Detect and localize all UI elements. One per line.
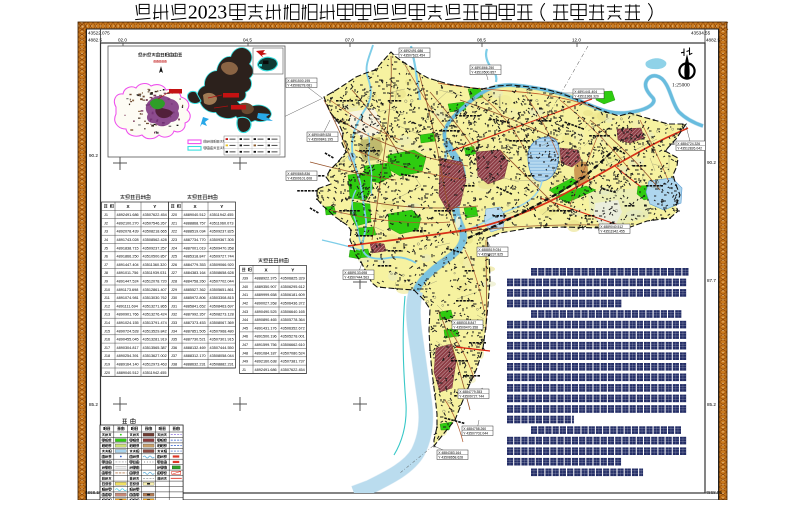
svg-text:Y: Y [291, 268, 294, 273]
svg-text:J38: J38 [171, 363, 177, 367]
svg-text:43507968.480: 43507968.480 [210, 329, 234, 333]
svg-text:J19: J19 [104, 363, 110, 367]
svg-text:43507080.524: 43507080.524 [281, 351, 305, 355]
svg-text:4885527.362: 4885527.362 [184, 288, 206, 292]
svg-text:07.0: 07.0 [345, 38, 354, 43]
svg-text:4890901.766: 4890901.766 [117, 313, 139, 317]
svg-text:X 4889040.512: X 4889040.512 [600, 225, 623, 229]
svg-text:43511360.320: 43511360.320 [143, 263, 167, 267]
svg-text:4891011.756: 4891011.756 [117, 271, 139, 275]
svg-text:43508218.665: 43508218.665 [143, 230, 167, 234]
svg-text:4891447.404: 4891447.404 [117, 263, 139, 267]
svg-text:Y 43509470.358: Y 43509470.358 [453, 326, 478, 330]
svg-text:X 4891500.195: X 4891500.195 [287, 79, 310, 83]
svg-text:4892100.270: 4892100.270 [117, 221, 139, 225]
svg-text:J1: J1 [242, 368, 246, 372]
svg-text:X 4891441.404: X 4891441.404 [574, 90, 597, 94]
svg-text:J8: J8 [104, 271, 108, 275]
svg-text:43509727.744: 43509727.744 [210, 255, 234, 259]
svg-text:43509470.358: 43509470.358 [210, 246, 234, 250]
svg-text:4892491.686: 4892491.686 [255, 368, 277, 372]
svg-text:J34: J34 [171, 329, 177, 333]
svg-text:4889999.658: 4889999.658 [255, 293, 277, 297]
svg-text:J42: J42 [242, 302, 248, 306]
svg-text:J20: J20 [171, 213, 177, 217]
svg-text:4891084.187: 4891084.187 [255, 351, 277, 355]
svg-text:J11: J11 [104, 296, 110, 300]
svg-text:J32: J32 [171, 313, 177, 317]
svg-text:4887730.521: 4887730.521 [184, 338, 206, 342]
svg-text:X 4890865.836: X 4890865.836 [287, 172, 310, 176]
svg-text:43509237.257: 43509237.257 [143, 246, 167, 250]
svg-text:X 4884383.164: X 4884383.164 [438, 451, 461, 455]
svg-text:Y 43509101.608: Y 43509101.608 [287, 177, 312, 181]
svg-text:4868.55: 4868.55 [85, 490, 102, 495]
svg-text:Y: Y [153, 204, 156, 209]
svg-text:J35: J35 [171, 338, 177, 342]
svg-text:J21: J21 [171, 221, 177, 225]
svg-text:X 4884758.260: X 4884758.260 [463, 427, 486, 431]
svg-text:J30: J30 [171, 296, 177, 300]
svg-text:1:25000: 1:25000 [672, 83, 690, 89]
svg-text:43506181.609: 43506181.609 [281, 293, 305, 297]
svg-text:43506662.610: 43506662.610 [281, 343, 305, 347]
svg-text:43507622.454: 43507622.454 [143, 213, 167, 217]
svg-text:43506436.372: 43506436.372 [281, 302, 305, 306]
svg-text:4890724.528: 4890724.528 [117, 329, 139, 333]
svg-text:Y 43509727.744: Y 43509727.744 [459, 395, 484, 399]
svg-text:43507546.267: 43507546.267 [143, 221, 167, 225]
svg-text:43508273.128: 43508273.128 [210, 313, 234, 317]
svg-text:43534.55: 43534.55 [691, 31, 711, 36]
svg-text:4891743.028: 4891743.028 [117, 238, 139, 242]
svg-text:43512861.407: 43512861.407 [143, 288, 167, 292]
svg-text:X 4885318.847: X 4885318.847 [453, 321, 476, 325]
svg-text:J23: J23 [171, 238, 177, 242]
svg-text:4889350.907: 4889350.907 [255, 285, 277, 289]
svg-text:4885841.652: 4885841.652 [184, 304, 206, 308]
svg-text:J46: J46 [242, 335, 248, 339]
svg-text:Y 43511368.320: Y 43511368.320 [574, 95, 599, 99]
svg-text:43507381.737: 43507381.737 [281, 360, 305, 364]
svg-text:90.2: 90.2 [89, 153, 98, 158]
svg-text:4887001.019: 4887001.019 [184, 246, 206, 250]
svg-text:4890490.525: 4890490.525 [255, 310, 277, 314]
svg-text:4888868.757: 4888868.757 [184, 221, 206, 225]
svg-text:4891074.981: 4891074.981 [117, 296, 139, 300]
svg-text:J9: J9 [104, 280, 108, 284]
svg-text:85.2: 85.2 [89, 402, 98, 407]
svg-text:J49: J49 [242, 360, 248, 364]
svg-text:X 4892491.686: X 4892491.686 [400, 49, 423, 53]
svg-text:43513281.919: 43513281.919 [143, 338, 167, 342]
svg-text:J39: J39 [242, 277, 248, 281]
svg-text:4890027.268: 4890027.268 [255, 302, 277, 306]
svg-text:Y 43508658.628: Y 43508658.628 [438, 456, 463, 460]
svg-text:43503308.815: 43503308.815 [210, 296, 234, 300]
svg-text:Y 43509843.195: Y 43509843.195 [308, 138, 333, 142]
svg-text:4890304.817: 4890304.817 [117, 346, 139, 350]
svg-text:4885972.806: 4885972.806 [184, 296, 206, 300]
svg-text:4891111.694: 4891111.694 [117, 304, 138, 308]
svg-text:43513529.842: 43513529.842 [143, 329, 167, 333]
svg-text:X 4884724.326: X 4884724.326 [677, 142, 700, 146]
svg-text:43513030.762: 43513030.762 [143, 296, 167, 300]
svg-text:43506825.329: 43506825.329 [281, 277, 305, 281]
svg-text:85.2: 85.2 [707, 402, 716, 407]
svg-text:4868.55: 4868.55 [706, 490, 723, 495]
svg-text:J31: J31 [171, 304, 177, 308]
svg-text:4888132.469: 4888132.469 [184, 346, 206, 350]
svg-text:43508882.231: 43508882.231 [210, 363, 234, 367]
svg-text:4891500.196: 4891500.196 [255, 335, 277, 339]
svg-text:4888312.170: 4888312.170 [184, 354, 206, 358]
svg-text:4884758.260: 4884758.260 [184, 280, 206, 284]
svg-text:4891173.698: 4891173.698 [117, 288, 139, 292]
svg-text:43505778.364: 43505778.364 [281, 318, 305, 322]
svg-text:90.2: 90.2 [707, 160, 716, 165]
svg-text:4884383.164: 4884383.164 [184, 271, 206, 275]
svg-text:J4: J4 [104, 238, 108, 242]
svg-text:J16: J16 [104, 338, 110, 342]
svg-text:J5: J5 [104, 246, 108, 250]
svg-text:J45: J45 [242, 326, 248, 330]
svg-text:J7: J7 [104, 263, 108, 267]
svg-text:4891866.250: 4891866.250 [117, 255, 139, 259]
svg-text:Y 43512826.042: Y 43512826.042 [677, 147, 702, 151]
svg-text:43508562.428: 43508562.428 [143, 238, 167, 242]
svg-text:J44: J44 [242, 318, 248, 322]
svg-text:43509237.825: 43509237.825 [210, 230, 234, 234]
svg-text:43508058.044: 43508058.044 [210, 354, 234, 358]
svg-text:4888519.034: 4888519.034 [184, 230, 206, 234]
svg-text:J22: J22 [171, 230, 177, 234]
svg-text:08.5: 08.5 [477, 38, 486, 43]
svg-text:X 4890489.528: X 4890489.528 [308, 133, 331, 137]
svg-text:43513271.865: 43513271.865 [143, 304, 167, 308]
svg-text:Y: Y [220, 204, 223, 209]
svg-text:43513276.424: 43513276.424 [143, 313, 167, 317]
svg-text:4889164.140: 4889164.140 [117, 363, 139, 367]
svg-text:J48: J48 [242, 351, 248, 355]
svg-text:J47: J47 [242, 343, 248, 347]
svg-text:4882.5: 4882.5 [706, 38, 720, 43]
svg-text:Y 43509237.825: Y 43509237.825 [478, 253, 503, 257]
svg-text:4887734.770: 4887734.770 [184, 238, 206, 242]
svg-text:4885318.847: 4885318.847 [184, 255, 206, 259]
svg-text:12.0: 12.0 [572, 38, 581, 43]
svg-text:87.7: 87.7 [707, 278, 716, 283]
svg-text:4889040.512: 4889040.512 [117, 371, 139, 375]
svg-text:4891599.756: 4891599.756 [255, 343, 277, 347]
svg-text:J3: J3 [104, 230, 108, 234]
svg-text:43508658.628: 43508658.628 [210, 271, 234, 275]
svg-text:4888922.375: 4888922.375 [255, 277, 277, 281]
svg-text:2023: 2023 [188, 1, 228, 23]
svg-text:43507702.044: 43507702.044 [210, 280, 234, 284]
svg-text:4887992.357: 4887992.357 [184, 313, 206, 317]
svg-text:J24: J24 [171, 246, 177, 250]
svg-text:4889040.512: 4889040.512 [184, 213, 206, 217]
svg-text:43505651.861: 43505651.861 [210, 288, 234, 292]
svg-text:43506640.165: 43506640.165 [281, 310, 305, 314]
svg-text:43506295.612: 43506295.612 [281, 285, 305, 289]
svg-text:43511942.455: 43511942.455 [143, 371, 167, 375]
svg-text:43513565.387: 43513565.387 [143, 346, 167, 350]
svg-text:Y 43507702.044: Y 43507702.044 [463, 432, 488, 436]
svg-text:J13: J13 [104, 313, 110, 317]
svg-text:J26: J26 [171, 263, 177, 267]
svg-text:4888632.231: 4888632.231 [184, 363, 206, 367]
svg-text:04.5: 04.5 [243, 38, 252, 43]
svg-text:43507301.915: 43507301.915 [210, 338, 234, 342]
svg-text:J28: J28 [171, 280, 177, 284]
svg-text:4890254.391: 4890254.391 [117, 354, 139, 358]
svg-text:4892491.686: 4892491.686 [117, 213, 139, 217]
svg-text:J6: J6 [104, 255, 108, 259]
svg-text:J37: J37 [171, 354, 177, 358]
svg-text:43513791.474: 43513791.474 [143, 321, 167, 325]
svg-text:43509367.305: 43509367.305 [210, 238, 234, 242]
svg-text:4892160.638: 4892160.638 [255, 360, 277, 364]
svg-text:4890455.045: 4890455.045 [117, 338, 139, 342]
svg-text:Y 43507622.454: Y 43507622.454 [400, 54, 425, 58]
svg-text:X 4891866.250: X 4891866.250 [471, 66, 494, 70]
svg-text:43512973.463: 43512973.463 [143, 363, 167, 367]
svg-text:J18: J18 [104, 354, 110, 358]
svg-text:J27: J27 [171, 271, 177, 275]
svg-text:4891431.176: 4891431.176 [255, 326, 277, 330]
svg-text:43505278.001: 43505278.001 [281, 335, 305, 339]
svg-text:4887373.453: 4887373.453 [184, 321, 206, 325]
svg-text:43506352.672: 43506352.672 [281, 326, 305, 330]
svg-text:J10: J10 [104, 288, 110, 292]
svg-text:Y 43511942.455: Y 43511942.455 [600, 230, 625, 234]
svg-text:J20: J20 [104, 371, 110, 375]
svg-text:J2: J2 [104, 221, 108, 225]
svg-text:43509066.920: 43509066.920 [210, 263, 234, 267]
svg-text:J29: J29 [171, 288, 177, 292]
svg-text:Y 43507444.563: Y 43507444.563 [344, 276, 369, 280]
svg-text:02.0: 02.0 [118, 38, 127, 43]
svg-text:4891838.715: 4891838.715 [117, 246, 139, 250]
svg-text:43512078.720: 43512078.720 [143, 280, 167, 284]
svg-text:43511060.073: 43511060.073 [210, 221, 234, 225]
svg-text:43511939.031: 43511939.031 [143, 271, 167, 275]
svg-text:Y 43508278.081: Y 43508278.081 [287, 84, 312, 88]
svg-text:J25: J25 [171, 255, 177, 259]
svg-text:43508067.369: 43508067.369 [210, 321, 234, 325]
svg-text:4887851.505: 4887851.505 [184, 329, 206, 333]
svg-text:4890890.465: 4890890.465 [255, 318, 277, 322]
svg-text:4891024.155: 4891024.155 [117, 321, 139, 325]
svg-text:43507444.550: 43507444.550 [210, 346, 234, 350]
svg-text:4891447.524: 4891447.524 [117, 280, 139, 284]
svg-text:J43: J43 [242, 310, 248, 314]
svg-text:43511942.455: 43511942.455 [210, 213, 234, 217]
svg-text:X 4888519.034: X 4888519.034 [478, 248, 501, 252]
svg-text:4884779.353: 4884779.353 [184, 263, 206, 267]
svg-text:J12: J12 [104, 304, 110, 308]
svg-text:43510500.857: 43510500.857 [143, 255, 167, 259]
svg-text:43507622.454: 43507622.454 [281, 368, 305, 372]
svg-text:J15: J15 [104, 329, 110, 333]
svg-text:43508463.697: 43508463.697 [210, 304, 234, 308]
svg-text:43513627.002: 43513627.002 [143, 354, 167, 358]
svg-text:X 4884779.353: X 4884779.353 [459, 390, 482, 394]
svg-text:J33: J33 [171, 321, 177, 325]
svg-text:X 4889133.698: X 4889133.698 [344, 271, 367, 275]
svg-text:4892078.439: 4892078.439 [117, 230, 139, 234]
svg-text:43522.075: 43522.075 [88, 31, 110, 36]
svg-text:J36: J36 [171, 346, 177, 350]
svg-text:J41: J41 [242, 293, 248, 297]
svg-text:J1: J1 [104, 213, 108, 217]
svg-text:Y 43510500.857: Y 43510500.857 [471, 71, 496, 75]
svg-text:J40: J40 [242, 285, 248, 289]
svg-text:J14: J14 [104, 321, 110, 325]
svg-text:J17: J17 [104, 346, 110, 350]
